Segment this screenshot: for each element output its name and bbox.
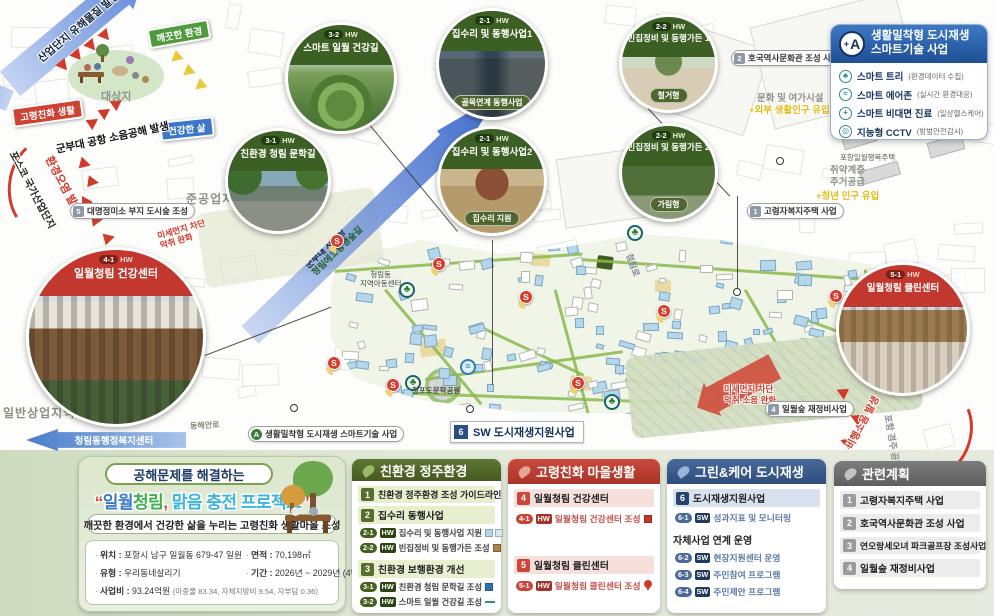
- eco-item-2-2: 2-2HW 빈집정비 및 동행가든 조성: [358, 542, 495, 554]
- related-item-3: 3 연오랑세오녀 파크골프장 조성사업: [840, 537, 980, 554]
- swatch-literature-path: [485, 583, 493, 591]
- poster-canvas: S S S S S S S S ♣ ♣ ♣ ♣ ♣ ≈ 군부대 사격장 청림에코…: [0, 0, 994, 616]
- callout-repair-2: 2-1HW집수리 및 동행사업2 집수리 지원: [437, 126, 547, 236]
- project-info-box: ·위치 : 포항시 남구 일월동 679-47 일원 ·면적 : 70,198㎡…: [85, 540, 339, 605]
- smart-tree-icon: ♣: [627, 225, 643, 241]
- swatch-repair: [485, 529, 503, 537]
- eco-item-3-2: 3-2HW 스마트 일월 건강길 조성: [358, 596, 495, 608]
- swatch-garden: [493, 544, 501, 552]
- panel-eco-environment: 친환경 정주환경 1 친환경 정주환경 조성 가이드라인 2 집수리 동행사업 …: [352, 459, 501, 613]
- callout-sub-label: 가림형: [649, 197, 687, 212]
- legend-item-smart-tree: ♣ 스마트 트리(환경데이터 수집): [839, 69, 979, 83]
- green-item-6-1: 6-1SW 성과지표 및 모니터링: [673, 511, 820, 524]
- callout-connector: [737, 196, 738, 292]
- pill-sw-support: 6 SW 도시재생지원사업: [450, 421, 584, 443]
- map-node: [290, 404, 298, 412]
- aging-group1-heading: 4 일월청림 건강센터: [514, 489, 654, 507]
- swatch-health-path: [485, 601, 495, 604]
- panel-eco-header: 친환경 정주환경: [352, 459, 501, 481]
- pill-badge: 2: [734, 53, 745, 64]
- info-budget: ·사업비 : 93.24억원 (마중물 83.34, 자체지방비 9.54, 자…: [95, 584, 370, 597]
- pill-badge-a: A: [251, 429, 262, 440]
- eco-item-2-1: 2-1HW 집수리 및 동행사업 지원: [358, 527, 495, 539]
- callout-repair-1: 2-1HW집수리 및 동행사업1 골목연계 동행사업: [436, 8, 548, 120]
- map-node: [733, 288, 741, 296]
- eco-item-3-1: 3-1HW 친환경 청림 문학길 조성: [358, 581, 495, 593]
- callout-literature-path: 3-1HW친환경 청림 문학길: [225, 128, 331, 234]
- welfare-center-arrow: 청림동행정복지센터: [26, 429, 186, 451]
- swatch-health-center: [644, 515, 652, 523]
- callout-sub-label: 집수리 지원: [464, 211, 519, 226]
- s-marker: S: [571, 376, 585, 390]
- panel-aging-header: 고령친화 마을생활: [508, 459, 660, 484]
- housing-plus-note: +청년 인구 유입: [816, 188, 879, 202]
- pill-senior-housing: 1 고령자복지주택 사업: [747, 203, 844, 219]
- callout-empty-house-2: 2-2HW빈집정비 및 동행가든 2 가림형: [619, 123, 718, 222]
- medical-icon: +: [839, 107, 852, 120]
- green-item-6-4: 6-4SW 주민제안 프로그램: [673, 585, 820, 598]
- swatch-clean-center-pin: [644, 580, 652, 591]
- leaf-icon: [843, 466, 859, 481]
- panel-aging-village: 고령친화 마을생활 4 일월청림 건강센터 4-1HW 일월청림 건강센터 조성…: [508, 459, 660, 613]
- panel-green-header: 그린&케어 도시재생: [667, 459, 826, 484]
- legend-item-cctv: ◎ 지능형 CCTV(방범안전감시): [839, 125, 979, 139]
- project-intro-panel: 공해문제를 해결하는 “일월청림, 맑음 충전 프로젝트” 깨끗한 환경에서 건…: [78, 456, 346, 612]
- green-item-6-3: 6-3SW 주민참여 프로그램: [673, 568, 820, 581]
- smart-tree-icon: ♣: [604, 394, 620, 410]
- welfare-center-label: 청림동행정복지센터: [75, 433, 154, 447]
- leaf-icon: [676, 464, 692, 479]
- callout-sub-label: 골목연계 동행사업: [453, 95, 530, 110]
- aging-item-4-1: 4-1HW 일월청림 건강센터 조성: [514, 512, 654, 525]
- callout-health-center: 4-1HW일월청림 건강센터: [26, 247, 206, 427]
- child-center-label: 청림동지역아동센터: [360, 270, 401, 288]
- callout-connector: [492, 240, 493, 385]
- map-node: [466, 405, 474, 413]
- green-sub-heading: 자체사업 연계 운영: [673, 532, 820, 547]
- callout-clean-center: 5-1HW일월청림 클린센터: [836, 262, 970, 396]
- panel-related-header: 관련계획: [834, 461, 986, 486]
- info-location: ·위치 : 포항시 남구 일월동 679-47 일원: [95, 548, 242, 561]
- related-item-1: 1 고령자복지주택 사업: [840, 491, 980, 509]
- a-badge-icon: +A: [839, 31, 865, 57]
- pill-forest-renewal: 4 일월숲 재정비사업: [765, 401, 854, 417]
- eco-group3-heading: 3 친환경 보행환경 개선: [358, 560, 495, 578]
- map-node: [776, 157, 784, 165]
- leaf-icon: [361, 463, 377, 478]
- project-tagline: 공해문제를 해결하는: [105, 463, 273, 485]
- cctv-icon: ◎: [839, 125, 852, 138]
- pill-badge: 1: [750, 206, 761, 217]
- s-marker: S: [327, 356, 341, 370]
- callout-empty-house-1: 2-2HW빈집정비 및 동행가든 1 철거형: [619, 14, 718, 113]
- site-label: 대상지: [101, 88, 131, 104]
- related-item-2: 2 호국역사문화관 조성 사업: [840, 514, 980, 532]
- leaf-icon: [517, 464, 533, 479]
- info-type: ·유형 : 우리동네살리기: [95, 566, 242, 579]
- housing-note-2: 주거공급: [830, 174, 865, 188]
- eco-group1-heading: 1 친환경 정주환경 조성 가이드라인: [358, 486, 495, 503]
- s-marker: S: [432, 257, 446, 271]
- aging-group2-heading: 5 일월청림 클린센터: [514, 556, 654, 574]
- tree-icon: ♣: [839, 70, 852, 83]
- legend-item-smart-airzone: ≈ 스마트 에어존(실시간 환경대응): [839, 88, 979, 102]
- eco-group2-heading: 2 집수리 동행사업: [358, 506, 495, 524]
- pill-badge-6: 6: [454, 425, 468, 439]
- culture-plus-note: +외부 생활인구 유입: [749, 102, 830, 116]
- s-marker: S: [657, 304, 671, 318]
- pollution-chevron: [87, 175, 100, 188]
- green-item-6-2: 6-2SW 현장지원센터 운영: [673, 551, 820, 564]
- pill-smart-tech: A 생활밀착형 도시재생 스마트기술 사업: [248, 426, 404, 442]
- pill-badge: 5: [73, 206, 84, 217]
- pill-hoguk-museum: 2 호국역사문화관 조성 사업: [731, 50, 846, 66]
- s-marker: S: [330, 234, 344, 248]
- happy-house-label: 포항일월행복주택: [840, 152, 895, 163]
- pill-badge: 4: [768, 404, 779, 415]
- park-label: 청포도문학공원: [412, 385, 460, 396]
- air-icon: ≈: [839, 88, 852, 101]
- s-marker: S: [519, 290, 533, 304]
- callout-sub-label: 철거형: [649, 88, 687, 103]
- aging-item-5-1: 5-1HW 일월청림 클린센터 조성: [514, 579, 654, 592]
- smart-airzone-icon: ≈: [460, 359, 476, 375]
- related-item-4: 4 일월숲 재정비사업: [840, 559, 980, 577]
- panel-related-plans: 관련계획 1 고령자복지주택 사업 2 호국역사문화관 조성 사업 3 연오랑세…: [834, 461, 986, 589]
- callout-smart-health-path: 3-2HW스마트 일월 건강길: [285, 22, 397, 134]
- panel-green-care: 그린&케어 도시재생 6 도시재생지원사업 6-1SW 성과지표 및 모니터링 …: [667, 459, 826, 613]
- tree-illustration: [279, 459, 343, 539]
- green-group-heading: 6 도시재생지원사업: [673, 489, 820, 507]
- legend-item-telemedicine: + 스마트 비대면 진료(일상헬스케어): [839, 106, 979, 120]
- smart-tech-legend: +A 생활밀착형 도시재생스마트기술 사업 ♣ 스마트 트리(환경데이터 수집)…: [830, 24, 988, 140]
- smart-tech-legend-header: +A 생활밀착형 도시재생스마트기술 사업: [831, 25, 987, 63]
- pill-rice-mill-forest: 5 대명정미소 부지 도시숲 조성: [70, 203, 195, 219]
- s-marker: S: [386, 378, 400, 392]
